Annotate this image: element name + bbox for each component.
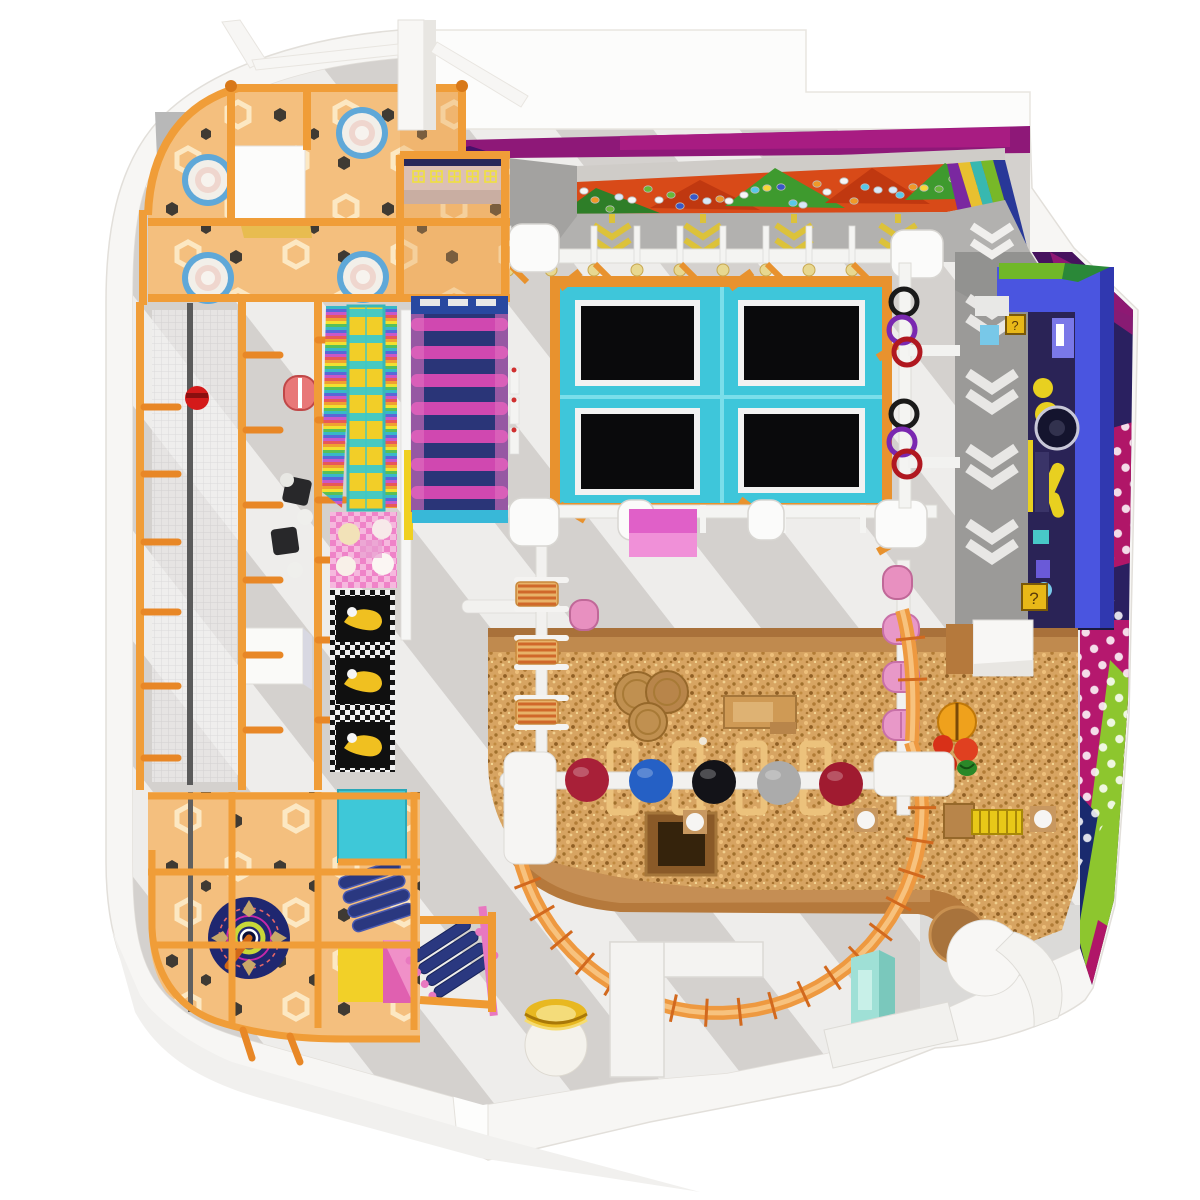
- svg-text:?: ?: [1011, 318, 1018, 333]
- svg-text:?: ?: [1029, 589, 1038, 608]
